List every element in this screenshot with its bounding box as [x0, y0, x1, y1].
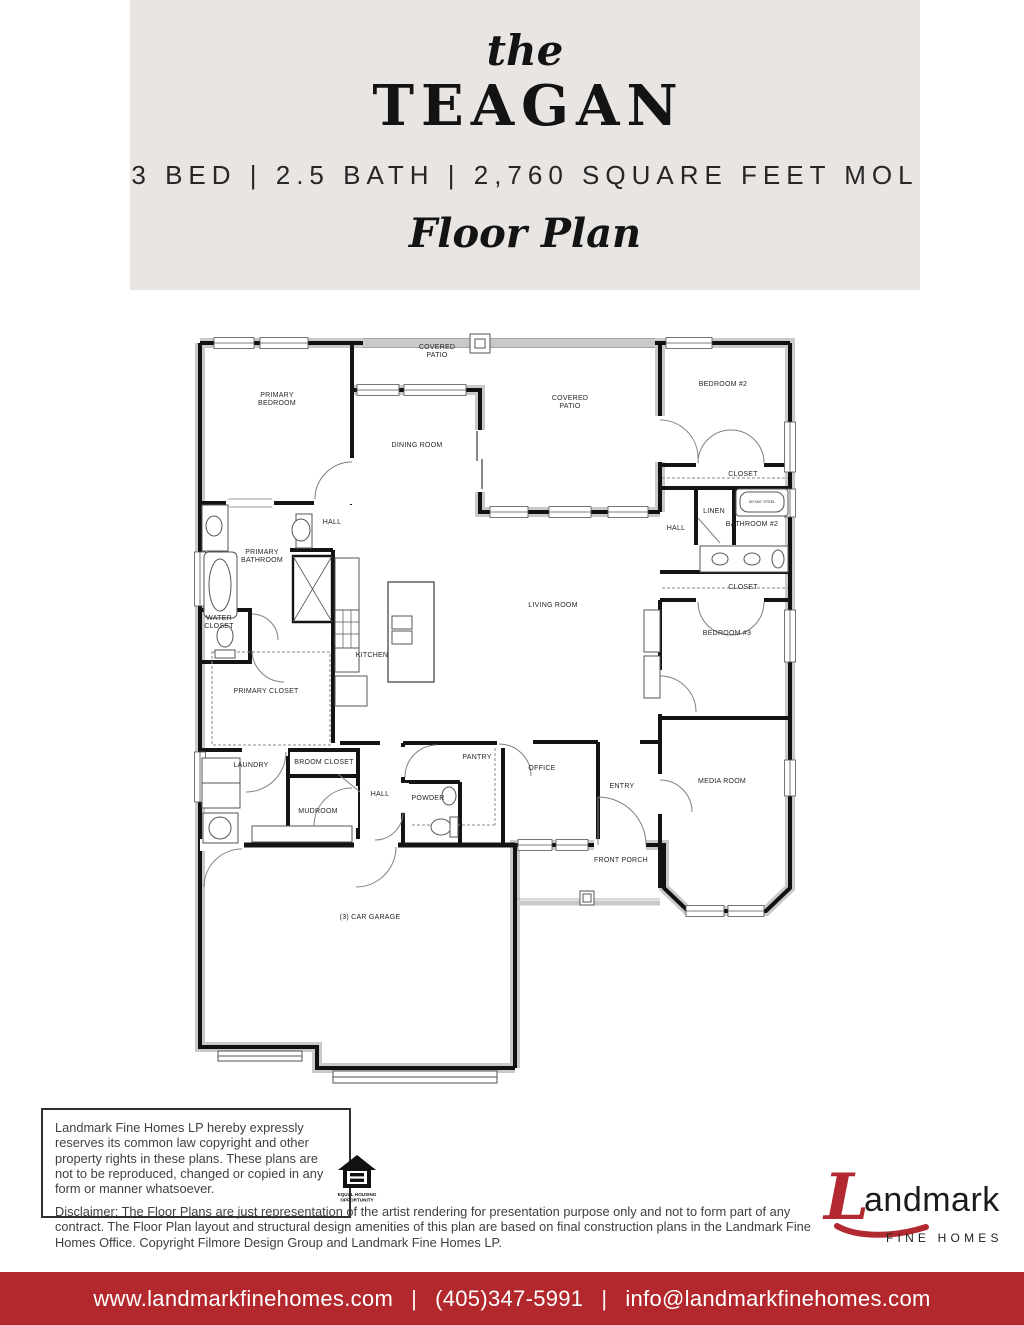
room-label-water-closet: WATER CLOSET	[198, 615, 240, 631]
title-prefix: the	[487, 30, 564, 72]
room-label-hall-2: HALL	[667, 525, 686, 533]
room-label-linen: LINEN	[703, 508, 725, 516]
floor-plan-drawing	[185, 328, 805, 1094]
footer-separator-2: |	[601, 1288, 607, 1310]
room-label-bathroom-2: BATHROOM #2	[726, 521, 778, 529]
room-label-tub-size: 30"X60" STEEL	[749, 500, 776, 504]
disclaimer-text: Disclaimer: The Floor Plans are just rep…	[55, 1204, 830, 1250]
landmark-wordmark: Landmark	[824, 1166, 1000, 1230]
room-label-primary-closet: PRIMARY CLOSET	[233, 688, 298, 696]
specs-line: 3 BED | 2.5 BATH | 2,760 SQUARE FEET MOL	[131, 162, 918, 188]
room-label-kitchen: KITCHEN	[356, 652, 388, 660]
copyright-notice-text: Landmark Fine Homes LP hereby expressly …	[55, 1120, 323, 1196]
equal-housing-house-icon: EQUAL HOUSING OPPORTUNITY	[336, 1154, 378, 1206]
room-label-primary-bathroom: PRIMARY BATHROOM	[234, 549, 290, 565]
room-label-hall-1: HALL	[323, 519, 342, 527]
room-label-media-room: MEDIA ROOM	[698, 778, 746, 786]
landmark-logo: Landmark FINE HOMES	[824, 1166, 1010, 1258]
room-label-covered-patio: COVERED PATIO	[547, 395, 593, 411]
room-label-closet-bed3: CLOSET	[728, 584, 758, 592]
room-label-closet-bed2: CLOSET	[728, 471, 758, 479]
header-panel: the TEAGAN 3 BED | 2.5 BATH | 2,760 SQUA…	[130, 0, 920, 290]
room-label-powder: POWDER	[412, 795, 445, 803]
room-label-mudroom: MUDROOM	[298, 808, 337, 816]
room-label-front-porch: FRONT PORCH	[594, 857, 648, 865]
flyer-page: the TEAGAN 3 BED | 2.5 BATH | 2,760 SQUA…	[0, 0, 1024, 1325]
room-label-covered-patio-top: COVERED PATIO	[414, 344, 460, 360]
footer-website-link[interactable]: www.landmarkfinehomes.com	[93, 1288, 393, 1310]
room-label-garage: (3) CAR GARAGE	[340, 914, 401, 922]
interior-walls	[200, 343, 790, 888]
footer-separator-1: |	[411, 1288, 417, 1310]
room-label-entry: ENTRY	[610, 783, 635, 791]
footer-bar: www.landmarkfinehomes.com | (405)347-599…	[0, 1272, 1024, 1325]
exterior-walls	[200, 343, 790, 1068]
eho-line1: EQUAL HOUSING	[338, 1192, 377, 1197]
room-label-living-room: LIVING ROOM	[528, 602, 577, 610]
landmark-rest: andmark	[864, 1181, 1000, 1219]
room-label-dining-room: DINING ROOM	[392, 442, 443, 450]
room-label-pantry: PANTRY	[462, 754, 491, 762]
footer-phone-link[interactable]: (405)347-5991	[435, 1288, 583, 1310]
room-label-hall-3: HALL	[371, 791, 390, 799]
room-label-bedroom-2: BEDROOM #2	[699, 381, 747, 389]
room-label-bedroom-3: BEDROOM #3	[703, 630, 751, 638]
landmark-tagline: FINE HOMES	[886, 1232, 1003, 1244]
eho-line2: OPPORTUNITY	[340, 1198, 373, 1203]
page-title: TEAGAN	[365, 78, 684, 134]
fixtures	[202, 334, 788, 1083]
room-label-laundry: LAUNDRY	[233, 762, 268, 770]
room-label-primary-bedroom: PRIMARY BEDROOM	[250, 392, 304, 408]
copyright-notice-box: Landmark Fine Homes LP hereby expressly …	[41, 1108, 351, 1218]
exterior-wall-hatch	[200, 343, 790, 1068]
subtitle: Floor Plan	[409, 214, 641, 254]
room-label-broom-closet: BROOM CLOSET	[294, 759, 353, 767]
footer-email-link[interactable]: info@landmarkfinehomes.com	[625, 1288, 930, 1310]
equal-housing-logo: EQUAL HOUSING OPPORTUNITY	[336, 1154, 378, 1211]
room-label-office: OFFICE	[528, 765, 555, 773]
